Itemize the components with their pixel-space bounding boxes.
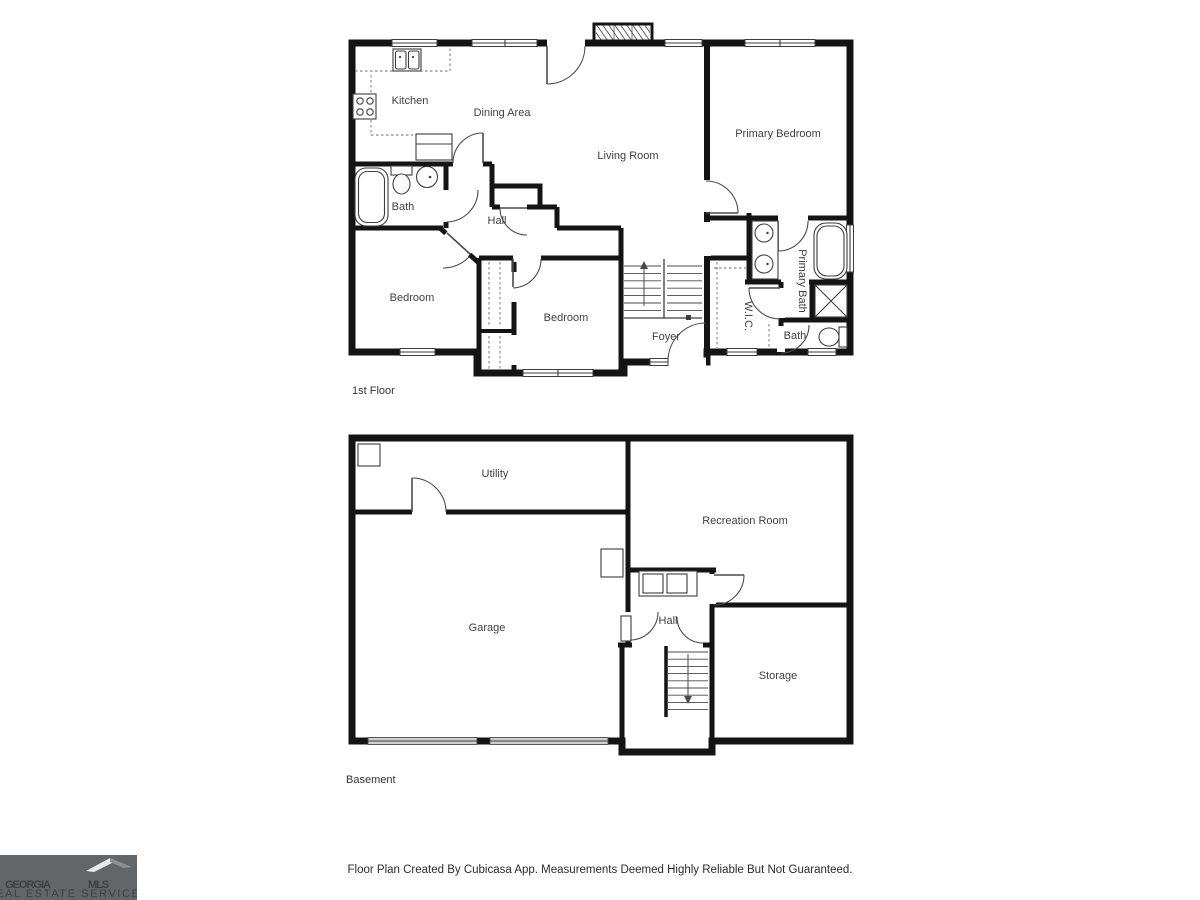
hall-fixture — [621, 616, 631, 641]
sink-icon — [755, 255, 773, 273]
room-label-kitchen: Kitchen — [392, 95, 429, 107]
basement-plan: Utility Recreation Room Garage Hall Stor… — [346, 438, 850, 786]
window — [650, 359, 668, 366]
bathtub-icon — [814, 223, 847, 279]
room-label-primary-bedroom: Primary Bedroom — [735, 128, 821, 140]
room-label-bedroom-middle: Bedroom — [544, 312, 589, 324]
toilet-icon — [819, 327, 847, 347]
door — [547, 46, 585, 84]
laundry-units — [639, 571, 697, 596]
window — [727, 349, 757, 356]
window — [523, 370, 593, 377]
room-label-recreation: Recreation Room — [702, 515, 788, 527]
floor-title-basement: Basement — [346, 774, 396, 786]
bsmt-fixtures — [358, 444, 697, 641]
room-label-foyer: Foyer — [652, 331, 680, 343]
first-floor-plan: Kitchen Dining Area Living Room Primary … — [352, 24, 855, 397]
sink-icon — [417, 167, 438, 188]
bsmt-doors — [412, 478, 744, 643]
water-heater-icon — [358, 444, 380, 466]
bathtub-icon — [355, 168, 388, 226]
window — [808, 349, 836, 356]
room-label-bsmt-hall: Hall — [659, 615, 678, 627]
door — [412, 478, 446, 512]
door — [446, 190, 478, 222]
room-label-storage: Storage — [759, 670, 798, 682]
stair-direction-arrow — [684, 654, 692, 704]
room-label-hall: Hall — [488, 215, 507, 227]
hall-bath-fixtures — [355, 166, 438, 226]
shower-icon — [815, 285, 847, 317]
door — [778, 221, 808, 251]
door — [714, 575, 744, 605]
window — [745, 40, 815, 47]
stove-icon — [353, 94, 376, 119]
kitchen-sink-icon — [393, 49, 421, 71]
ff-interior-walls — [352, 43, 850, 373]
room-label-dining: Dining Area — [474, 107, 532, 119]
window — [472, 40, 537, 47]
floor-plan-canvas: Kitchen Dining Area Living Room Primary … — [0, 0, 1200, 900]
ff-stairs — [624, 259, 702, 320]
room-label-bath2: Bath — [784, 330, 807, 342]
utility-panel-icon — [601, 549, 623, 577]
toilet-icon — [391, 166, 412, 194]
window — [392, 40, 437, 47]
window — [400, 349, 435, 356]
window — [665, 40, 702, 47]
bsmt-interior-walls — [352, 438, 850, 741]
disclaimer-text: Floor Plan Created By Cubicasa App. Meas… — [348, 864, 853, 876]
door — [630, 612, 658, 640]
bsmt-stairs — [666, 646, 708, 717]
floor-plan-page: Kitchen Dining Area Living Room Primary … — [0, 0, 1200, 900]
room-label-bath: Bath — [392, 201, 415, 213]
room-label-utility: Utility — [482, 468, 509, 480]
room-label-primary-bath: Primary Bath — [796, 249, 808, 313]
room-label-bedroom-left: Bedroom — [390, 292, 435, 304]
stair-direction-arrow — [640, 261, 648, 306]
door — [677, 617, 703, 643]
room-label-living: Living Room — [597, 150, 658, 162]
ff-outer-walls — [352, 43, 850, 373]
counter-island — [416, 134, 452, 160]
room-label-garage: Garage — [469, 622, 506, 634]
door-stop-marker — [686, 315, 691, 320]
georgia-mls-logo: GEORGIA MLS REAL ESTATE SERVICES — [0, 855, 137, 900]
logo-tagline: REAL ESTATE SERVICES — [0, 888, 137, 900]
bsmt-outer-walls — [352, 438, 850, 752]
door — [453, 133, 483, 163]
floor-title-1st: 1st Floor — [352, 385, 395, 397]
room-label-wic: W.I.C. — [742, 301, 754, 331]
sink-icon — [755, 224, 773, 242]
